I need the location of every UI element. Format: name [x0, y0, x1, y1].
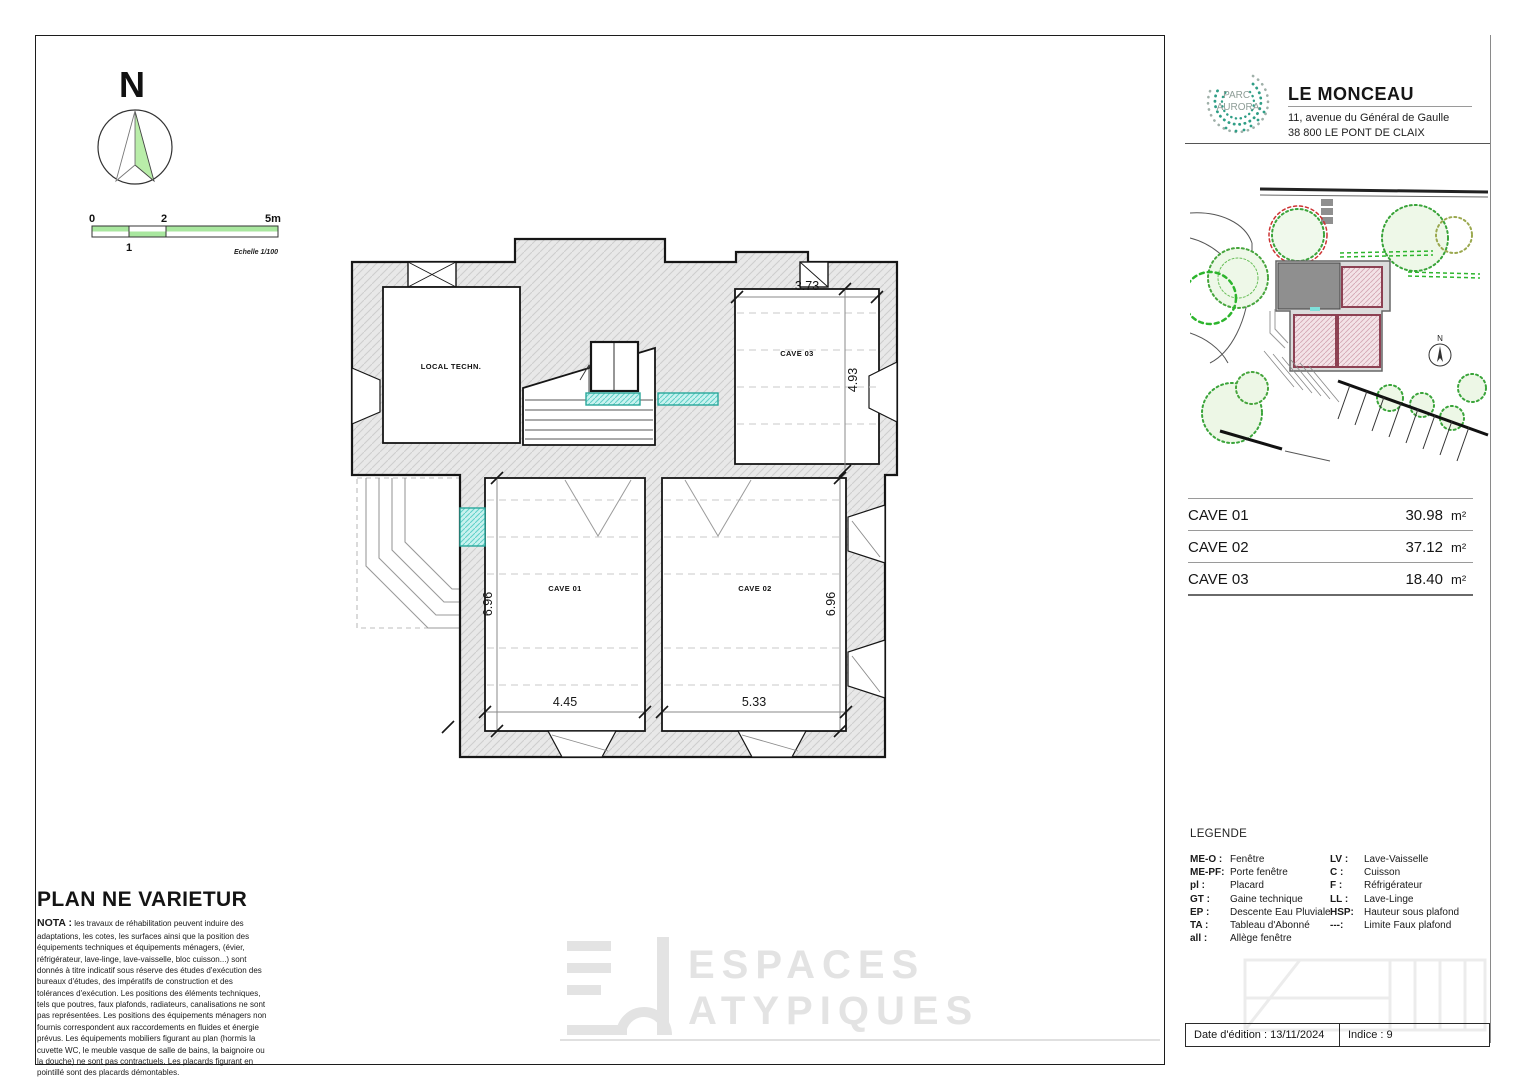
legend-def: Descente Eau Pluviale: [1230, 906, 1331, 919]
area-value: 30.98: [1405, 507, 1443, 524]
legend-abbr: ME-PF:: [1190, 866, 1230, 879]
legend-def: Lave-Vaisselle: [1364, 853, 1428, 866]
project-address-line2: 38 800 LE PONT DE CLAIX: [1288, 127, 1425, 139]
espaces-atypiques-logo-icon: [565, 935, 673, 1039]
legend-def: Lave-Linge: [1364, 893, 1413, 906]
scale-bar: 0 2 5m 1 Echelle 1/100: [85, 208, 300, 260]
compass-needle-white: [116, 111, 135, 181]
legend-abbr: all :: [1190, 932, 1230, 945]
legend-abbr: ME-O :: [1190, 853, 1230, 866]
label-cave-03: CAVE 03: [780, 349, 814, 358]
legend-abbr: LL :: [1330, 893, 1364, 906]
logo-line1: PARC: [1223, 90, 1250, 101]
area-label: CAVE 01: [1188, 507, 1249, 524]
legend-def: Hauteur sous plafond: [1364, 906, 1459, 919]
legend-def: Tableau d'Abonné: [1230, 919, 1310, 932]
legend-def: Limite Faux plafond: [1364, 919, 1451, 932]
area-label: CAVE 02: [1188, 539, 1249, 556]
scale-caption: Echelle 1/100: [234, 249, 278, 256]
area-value: 18.40: [1405, 571, 1443, 588]
legend-abbr: C :: [1330, 866, 1364, 879]
label-cave-01: CAVE 01: [548, 584, 582, 593]
cyan-window: [460, 508, 485, 546]
legend-abbr: ---:: [1330, 919, 1364, 932]
road-edge-top: [1260, 189, 1488, 192]
site-compass: N: [1429, 334, 1451, 366]
dim-cave03-height: 4.93: [846, 368, 860, 392]
legend-abbr: pl :: [1190, 879, 1230, 892]
watermark-line2: ATYPIQUES: [688, 988, 979, 1034]
legend-abbr: TA :: [1190, 919, 1230, 932]
floor-plan: 3.73 4.93 6.96 4.45 5.33 6.96 LOCAL TECH…: [340, 228, 920, 763]
legend-abbr: EP :: [1190, 906, 1230, 919]
shaft-room: [591, 342, 638, 391]
nota-heading: PLAN NE VARIETUR: [37, 888, 247, 912]
area-unit: m²: [1451, 540, 1473, 555]
logo-line2: AURORA: [1217, 102, 1260, 113]
project-address-line1: 11, avenue du Général de Gaulle: [1288, 112, 1449, 124]
indice: Indice : 9: [1340, 1024, 1393, 1046]
area-label: CAVE 03: [1188, 571, 1249, 588]
nota-label: NOTA :: [37, 917, 72, 929]
legend-abbr: F :: [1330, 879, 1364, 892]
legend-def: Gaine technique: [1230, 893, 1303, 906]
north-label: N: [119, 64, 145, 105]
scale-5m: 5m: [265, 213, 281, 225]
legend-title: LEGENDE: [1190, 828, 1247, 840]
titleblock-divider: [1185, 143, 1490, 144]
scale-1: 1: [126, 242, 132, 254]
compass-needle-green: [135, 111, 154, 181]
legend-right-column: LV :Lave-Vaisselle C :Cuisson F :Réfrigé…: [1330, 853, 1490, 932]
project-title: LE MONCEAU: [1288, 84, 1414, 105]
nota-body: les travaux de réhabilitation peuvent in…: [37, 919, 266, 1077]
room-cave-01: [485, 478, 645, 731]
dim-cave02-height: 6.96: [824, 592, 838, 616]
dim-cave01-width: 4.45: [553, 695, 577, 709]
site-building: [1270, 261, 1390, 371]
site-compass-label: N: [1437, 334, 1443, 343]
area-table-bottom-rule: [1188, 594, 1473, 596]
scale-2: 2: [161, 213, 167, 225]
room-cave-02: [662, 478, 846, 731]
legend-abbr: HSP:: [1330, 906, 1364, 919]
legend-def: Placard: [1230, 879, 1264, 892]
dim-cave02-width: 5.33: [742, 695, 766, 709]
nota-paragraph: NOTA : les travaux de réhabilitation peu…: [37, 916, 269, 1079]
legend-abbr: LV :: [1330, 853, 1364, 866]
legend-def: Réfrigérateur: [1364, 879, 1422, 892]
label-cave-02: CAVE 02: [738, 584, 772, 593]
watermark: ESPACES ATYPIQUES: [688, 942, 979, 1034]
dim-cave01-height: 6.96: [481, 592, 495, 616]
label-local-tech: LOCAL TECHN.: [421, 362, 482, 371]
footer-strip: Date d'édition : 13/11/2024 Indice : 9: [1185, 1023, 1490, 1047]
svg-text:PARC AURORA: PARC AURORA: [1217, 90, 1260, 113]
dim-cave03-width: 3.73: [795, 279, 819, 293]
legend-def: Fenêtre: [1230, 853, 1264, 866]
legend-def: Porte fenêtre: [1230, 866, 1288, 879]
area-row-cave03: CAVE 03 18.40 m²: [1188, 562, 1473, 595]
legend-def: Allège fenêtre: [1230, 932, 1292, 945]
area-value: 37.12: [1405, 539, 1443, 556]
legend-def: Cuisson: [1364, 866, 1400, 879]
scale-0: 0: [89, 213, 95, 225]
parc-aurora-logo: PARC AURORA: [1196, 58, 1284, 150]
title-underline: [1288, 106, 1472, 107]
area-unit: m²: [1451, 572, 1473, 587]
site-plan: N: [1190, 183, 1490, 465]
legend-left-column: ME-O :Fenêtre ME-PF:Porte fenêtre pl :Pl…: [1190, 853, 1330, 945]
area-row-cave02: CAVE 02 37.12 m²: [1188, 530, 1473, 563]
panel-right-border: [1490, 35, 1491, 1043]
watermark-line1: ESPACES: [688, 942, 979, 988]
north-compass: N: [85, 55, 195, 200]
plan-sheet: N 0 2 5m 1 Echelle 1/100: [0, 0, 1528, 1080]
edition-date: Date d'édition : 13/11/2024: [1186, 1024, 1340, 1046]
watermark-underline: [560, 1039, 1160, 1041]
area-row-cave01: CAVE 01 30.98 m²: [1188, 498, 1473, 531]
area-unit: m²: [1451, 508, 1473, 523]
legend-abbr: GT :: [1190, 893, 1230, 906]
